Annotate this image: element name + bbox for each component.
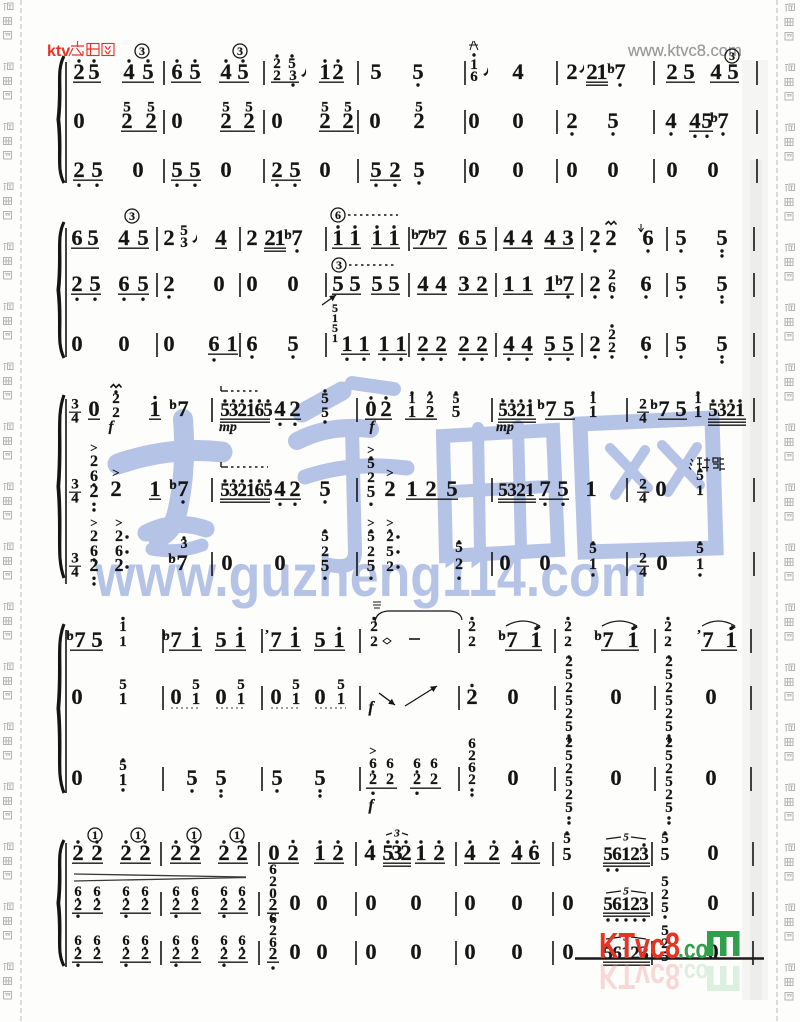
svg-text:1: 1 bbox=[696, 556, 704, 573]
svg-text:0: 0 bbox=[316, 890, 327, 915]
svg-text:2: 2 bbox=[369, 771, 377, 788]
svg-text:0: 0 bbox=[271, 108, 282, 133]
svg-text:7: 7 bbox=[562, 271, 573, 296]
svg-text:2: 2 bbox=[218, 840, 229, 865]
svg-text:2: 2 bbox=[91, 840, 102, 865]
svg-text:0: 0 bbox=[118, 331, 129, 356]
svg-text:0: 0 bbox=[215, 684, 226, 709]
svg-text:0: 0 bbox=[666, 157, 677, 182]
svg-text:5: 5 bbox=[371, 271, 382, 296]
svg-text:7: 7 bbox=[545, 396, 556, 421]
svg-text:1: 1 bbox=[119, 770, 128, 789]
svg-text:0: 0 bbox=[610, 684, 621, 709]
svg-text:0: 0 bbox=[468, 157, 479, 182]
svg-text:1: 1 bbox=[371, 225, 382, 250]
svg-text:2: 2 bbox=[189, 840, 200, 865]
svg-text:1: 1 bbox=[378, 331, 389, 356]
svg-text:6: 6 bbox=[608, 280, 616, 296]
svg-text:0: 0 bbox=[656, 550, 667, 575]
svg-text:1: 1 bbox=[289, 627, 300, 652]
svg-text:2: 2 bbox=[172, 897, 180, 914]
svg-text:0: 0 bbox=[213, 271, 224, 296]
svg-text:5: 5 bbox=[675, 396, 686, 421]
svg-text:5: 5 bbox=[171, 157, 182, 182]
svg-text:0: 0 bbox=[71, 331, 82, 356]
svg-text:2: 2 bbox=[566, 59, 577, 84]
svg-text:3: 3 bbox=[237, 44, 243, 58]
svg-text:4: 4 bbox=[503, 331, 514, 356]
svg-text:0: 0 bbox=[319, 157, 330, 182]
svg-text:0: 0 bbox=[539, 550, 550, 575]
svg-text:5: 5 bbox=[215, 765, 226, 790]
svg-text:6: 6 bbox=[640, 331, 651, 356]
svg-text:5: 5 bbox=[661, 900, 669, 916]
svg-text:3: 3 bbox=[393, 828, 400, 840]
svg-text:1: 1 bbox=[319, 59, 330, 84]
svg-text:0: 0 bbox=[274, 550, 285, 575]
svg-text:7: 7 bbox=[270, 627, 281, 652]
svg-text:0: 0 bbox=[705, 765, 716, 790]
svg-text:2: 2 bbox=[289, 476, 300, 501]
svg-text:mp: mp bbox=[219, 420, 237, 435]
svg-text:4: 4 bbox=[544, 225, 555, 250]
svg-text:2: 2 bbox=[370, 634, 378, 650]
svg-text:5: 5 bbox=[137, 225, 148, 250]
svg-text:1: 1 bbox=[589, 556, 597, 573]
svg-text:3: 3 bbox=[729, 49, 735, 63]
svg-text:’: ’ bbox=[697, 628, 702, 643]
svg-text:2: 2 bbox=[191, 946, 199, 963]
svg-text:3: 3 bbox=[129, 209, 135, 223]
svg-text:1: 1 bbox=[627, 627, 638, 652]
svg-text:2: 2 bbox=[73, 157, 84, 182]
svg-text:0: 0 bbox=[464, 939, 475, 964]
svg-text:1: 1 bbox=[725, 627, 736, 652]
svg-text:2: 2 bbox=[564, 634, 572, 650]
svg-text:2: 2 bbox=[191, 897, 199, 914]
svg-text:2: 2 bbox=[72, 840, 83, 865]
svg-text:7: 7 bbox=[506, 627, 517, 652]
svg-text:7: 7 bbox=[614, 59, 625, 84]
svg-text:2: 2 bbox=[332, 59, 343, 84]
svg-text:5: 5 bbox=[475, 225, 486, 250]
svg-text:1: 1 bbox=[292, 689, 301, 708]
svg-text:0: 0 bbox=[369, 108, 380, 133]
svg-text:2: 2 bbox=[141, 897, 149, 914]
svg-text:7: 7 bbox=[702, 627, 713, 652]
svg-text:1: 1 bbox=[735, 400, 745, 421]
svg-text:4: 4 bbox=[511, 840, 522, 865]
svg-text:5: 5 bbox=[367, 482, 376, 501]
svg-text:5: 5 bbox=[412, 59, 423, 84]
svg-text:5: 5 bbox=[716, 225, 727, 250]
svg-text:2: 2 bbox=[139, 840, 150, 865]
svg-text:6: 6 bbox=[171, 59, 182, 84]
svg-text:2: 2 bbox=[122, 946, 130, 963]
svg-text:2: 2 bbox=[93, 897, 101, 914]
svg-text:2: 2 bbox=[74, 946, 82, 963]
svg-text:1: 1 bbox=[525, 400, 535, 421]
svg-text:2: 2 bbox=[73, 59, 84, 84]
svg-text:5: 5 bbox=[87, 225, 98, 250]
svg-text:0: 0 bbox=[365, 396, 376, 421]
svg-text:2: 2 bbox=[400, 840, 411, 865]
svg-text:7: 7 bbox=[176, 550, 187, 575]
svg-text:5: 5 bbox=[289, 157, 300, 182]
svg-text:5: 5 bbox=[557, 476, 568, 501]
svg-text:5: 5 bbox=[446, 476, 457, 501]
svg-text:1: 1 bbox=[119, 689, 128, 708]
svg-text:2: 2 bbox=[342, 108, 353, 133]
svg-text:0: 0 bbox=[655, 476, 666, 501]
svg-text:1: 1 bbox=[190, 627, 201, 652]
svg-text:4: 4 bbox=[118, 225, 129, 250]
svg-text:2: 2 bbox=[468, 619, 476, 635]
svg-text:0: 0 bbox=[289, 939, 300, 964]
svg-text:5: 5 bbox=[137, 271, 148, 296]
svg-text:5: 5 bbox=[215, 627, 226, 652]
svg-text:1: 1 bbox=[596, 59, 607, 84]
svg-text:1: 1 bbox=[585, 476, 596, 501]
svg-text:2: 2 bbox=[425, 476, 436, 501]
svg-text:7: 7 bbox=[291, 225, 302, 250]
svg-text:0: 0 bbox=[171, 108, 182, 133]
svg-text:4: 4 bbox=[220, 59, 231, 84]
svg-text:2: 2 bbox=[476, 331, 487, 356]
svg-text:5: 5 bbox=[665, 719, 673, 735]
svg-text:1: 1 bbox=[341, 331, 352, 356]
svg-text:6: 6 bbox=[413, 756, 421, 772]
svg-text:1: 1 bbox=[415, 840, 426, 865]
svg-text:mp: mp bbox=[496, 420, 514, 435]
svg-text:1: 1 bbox=[406, 476, 417, 501]
svg-text:0: 0 bbox=[246, 271, 257, 296]
svg-text:5: 5 bbox=[452, 402, 461, 421]
svg-text:1: 1 bbox=[119, 634, 127, 650]
svg-text:5: 5 bbox=[683, 59, 694, 84]
svg-text:2: 2 bbox=[74, 897, 82, 914]
svg-text:0: 0 bbox=[512, 157, 523, 182]
svg-text:7: 7 bbox=[658, 396, 669, 421]
svg-text:0: 0 bbox=[507, 684, 518, 709]
svg-text:5: 5 bbox=[413, 157, 424, 182]
svg-text:2: 2 bbox=[389, 157, 400, 182]
svg-text:2: 2 bbox=[386, 559, 394, 575]
svg-text:5: 5 bbox=[189, 59, 200, 84]
svg-text:2: 2 bbox=[384, 476, 395, 501]
svg-text:2: 2 bbox=[115, 555, 124, 575]
svg-text:0: 0 bbox=[705, 684, 716, 709]
svg-text:2: 2 bbox=[664, 634, 672, 650]
svg-text:2: 2 bbox=[589, 225, 600, 250]
svg-text:5: 5 bbox=[89, 271, 100, 296]
svg-text:2: 2 bbox=[220, 108, 231, 133]
svg-text:5: 5 bbox=[263, 480, 273, 501]
svg-text:0: 0 bbox=[566, 157, 577, 182]
svg-text:0: 0 bbox=[88, 396, 99, 421]
svg-text:0: 0 bbox=[511, 939, 522, 964]
svg-text:0: 0 bbox=[512, 108, 523, 133]
svg-text:4: 4 bbox=[665, 108, 676, 133]
svg-text:5: 5 bbox=[321, 556, 330, 575]
svg-text:2: 2 bbox=[163, 271, 174, 296]
svg-text:2: 2 bbox=[93, 946, 101, 963]
svg-text:2: 2 bbox=[220, 946, 228, 963]
svg-text:5: 5 bbox=[565, 800, 573, 816]
svg-text:7: 7 bbox=[177, 396, 188, 421]
svg-text:0: 0 bbox=[365, 939, 376, 964]
svg-text:4: 4 bbox=[639, 491, 647, 507]
svg-text:6: 6 bbox=[386, 756, 394, 772]
svg-text:4: 4 bbox=[689, 108, 700, 133]
svg-text:5: 5 bbox=[388, 271, 399, 296]
svg-text:5: 5 bbox=[271, 765, 282, 790]
svg-text:2: 2 bbox=[666, 59, 677, 84]
svg-text:4: 4 bbox=[417, 271, 428, 296]
svg-text:2: 2 bbox=[287, 840, 298, 865]
svg-text:0: 0 bbox=[170, 684, 181, 709]
svg-text:6: 6 bbox=[470, 69, 478, 85]
svg-text:2: 2 bbox=[589, 271, 600, 296]
svg-text:6: 6 bbox=[208, 331, 219, 356]
svg-text:5: 5 bbox=[675, 271, 686, 296]
svg-text:3: 3 bbox=[562, 225, 573, 250]
svg-text:5: 5 bbox=[142, 59, 153, 84]
svg-text:2: 2 bbox=[246, 225, 257, 250]
svg-text:6: 6 bbox=[430, 756, 438, 772]
svg-text:4: 4 bbox=[521, 225, 532, 250]
svg-text:2: 2 bbox=[417, 331, 428, 356]
svg-text:0: 0 bbox=[410, 890, 421, 915]
svg-text:5: 5 bbox=[563, 844, 572, 864]
svg-text:7: 7 bbox=[417, 225, 428, 250]
svg-text:2: 2 bbox=[121, 108, 132, 133]
svg-text:1: 1 bbox=[349, 225, 360, 250]
svg-text:4: 4 bbox=[710, 59, 721, 84]
svg-text:2: 2 bbox=[120, 840, 131, 865]
svg-text:2: 2 bbox=[243, 108, 254, 133]
svg-text:0: 0 bbox=[287, 271, 298, 296]
svg-text:0: 0 bbox=[132, 157, 143, 182]
svg-text:0: 0 bbox=[707, 840, 718, 865]
svg-text:6: 6 bbox=[71, 225, 82, 250]
svg-text:3: 3 bbox=[180, 235, 188, 251]
svg-text:4: 4 bbox=[71, 491, 79, 507]
svg-text:4: 4 bbox=[215, 225, 226, 250]
svg-text:7: 7 bbox=[170, 627, 181, 652]
svg-text:1: 1 bbox=[192, 689, 201, 708]
svg-text:5: 5 bbox=[623, 832, 629, 844]
svg-text:1: 1 bbox=[226, 331, 237, 356]
svg-text:2: 2 bbox=[589, 331, 600, 356]
svg-text:2: 2 bbox=[236, 840, 247, 865]
svg-text:1: 1 bbox=[503, 271, 514, 296]
svg-text:1: 1 bbox=[333, 627, 344, 652]
svg-text:5: 5 bbox=[370, 157, 381, 182]
svg-text:6: 6 bbox=[246, 331, 257, 356]
svg-text:5: 5 bbox=[332, 271, 343, 296]
svg-text:2: 2 bbox=[145, 108, 156, 133]
svg-text:2: 2 bbox=[172, 946, 180, 963]
svg-text:4: 4 bbox=[71, 411, 79, 427]
svg-text:.co: .co bbox=[678, 935, 708, 965]
svg-text:1: 1 bbox=[530, 627, 541, 652]
svg-text:>: > bbox=[386, 515, 393, 530]
svg-text:7: 7 bbox=[177, 476, 188, 501]
svg-text:1: 1 bbox=[525, 480, 535, 501]
svg-text:1: 1 bbox=[314, 840, 325, 865]
svg-text:6: 6 bbox=[458, 225, 469, 250]
svg-text:2: 2 bbox=[564, 619, 572, 635]
svg-text:0: 0 bbox=[499, 550, 510, 575]
svg-text:2: 2 bbox=[608, 340, 616, 356]
svg-text:0: 0 bbox=[71, 684, 82, 709]
svg-text:2: 2 bbox=[466, 684, 477, 709]
svg-text:7: 7 bbox=[74, 627, 85, 652]
svg-text:2: 2 bbox=[455, 556, 463, 573]
svg-text:4: 4 bbox=[364, 840, 375, 865]
svg-text:0: 0 bbox=[464, 890, 475, 915]
svg-text:1: 1 bbox=[237, 689, 246, 708]
svg-text:2: 2 bbox=[435, 331, 446, 356]
svg-text:5: 5 bbox=[562, 331, 573, 356]
svg-text:2: 2 bbox=[110, 476, 121, 501]
svg-text:5: 5 bbox=[91, 157, 102, 182]
svg-text:2: 2 bbox=[468, 772, 476, 788]
svg-text:6: 6 bbox=[642, 225, 653, 250]
svg-text:1: 1 bbox=[694, 402, 703, 421]
svg-text:2: 2 bbox=[122, 897, 130, 914]
svg-text:3: 3 bbox=[639, 844, 649, 865]
svg-text:2: 2 bbox=[426, 402, 435, 421]
svg-text:6: 6 bbox=[528, 840, 539, 865]
svg-text:1: 1 bbox=[337, 689, 346, 708]
svg-text:5: 5 bbox=[607, 108, 618, 133]
svg-text:0: 0 bbox=[707, 157, 718, 182]
svg-text:2: 2 bbox=[289, 396, 300, 421]
svg-text:2: 2 bbox=[605, 225, 616, 250]
svg-text:’: ’ bbox=[265, 628, 270, 643]
svg-text:0: 0 bbox=[610, 765, 621, 790]
svg-text:2: 2 bbox=[319, 108, 330, 133]
svg-text:0: 0 bbox=[507, 765, 518, 790]
svg-text:3: 3 bbox=[458, 271, 469, 296]
svg-text:0: 0 bbox=[73, 108, 84, 133]
svg-text:2: 2 bbox=[141, 946, 149, 963]
svg-text:2: 2 bbox=[413, 108, 424, 133]
svg-text:5: 5 bbox=[665, 800, 673, 816]
svg-text:1: 1 bbox=[358, 331, 369, 356]
svg-text:2: 2 bbox=[413, 771, 421, 788]
svg-text:0: 0 bbox=[289, 890, 300, 915]
svg-text:5: 5 bbox=[675, 331, 686, 356]
svg-text:2: 2 bbox=[71, 271, 82, 296]
svg-text:5: 5 bbox=[287, 331, 298, 356]
svg-text:5: 5 bbox=[186, 765, 197, 790]
svg-text:5: 5 bbox=[349, 271, 360, 296]
svg-text:0: 0 bbox=[314, 684, 325, 709]
svg-text:2: 2 bbox=[433, 840, 444, 865]
svg-text:1: 1 bbox=[544, 271, 555, 296]
svg-text:1: 1 bbox=[388, 225, 399, 250]
svg-text:5: 5 bbox=[88, 59, 99, 84]
svg-text:5: 5 bbox=[661, 844, 670, 864]
svg-text:1: 1 bbox=[332, 225, 343, 250]
svg-text:1: 1 bbox=[149, 476, 160, 501]
svg-text:2: 2 bbox=[238, 897, 246, 914]
svg-text:2: 2 bbox=[90, 555, 99, 575]
svg-text:0: 0 bbox=[220, 157, 231, 182]
svg-text:2: 2 bbox=[170, 840, 181, 865]
svg-text:6: 6 bbox=[335, 208, 341, 222]
svg-text:ktv: ktv bbox=[47, 43, 70, 60]
svg-text:2: 2 bbox=[163, 225, 174, 250]
svg-text:2: 2 bbox=[90, 481, 99, 501]
svg-text:4: 4 bbox=[123, 59, 134, 84]
svg-text:2: 2 bbox=[664, 619, 672, 635]
svg-text:2: 2 bbox=[430, 771, 438, 788]
svg-text:7: 7 bbox=[435, 225, 446, 250]
svg-text:5: 5 bbox=[716, 331, 727, 356]
svg-text:5: 5 bbox=[386, 544, 394, 560]
svg-text:5: 5 bbox=[237, 59, 248, 84]
svg-text:0: 0 bbox=[562, 939, 573, 964]
svg-text:2: 2 bbox=[386, 771, 394, 788]
svg-text:2: 2 bbox=[220, 897, 228, 914]
svg-text:0: 0 bbox=[511, 890, 522, 915]
svg-text:6: 6 bbox=[640, 271, 651, 296]
svg-text:6: 6 bbox=[118, 271, 129, 296]
svg-text:5: 5 bbox=[319, 476, 330, 501]
svg-text:0: 0 bbox=[468, 108, 479, 133]
svg-text:1: 1 bbox=[696, 483, 704, 499]
svg-text:2: 2 bbox=[370, 619, 378, 635]
svg-text:4: 4 bbox=[512, 59, 523, 84]
svg-text:1: 1 bbox=[395, 331, 406, 356]
svg-text:2: 2 bbox=[566, 108, 577, 133]
svg-text:0: 0 bbox=[221, 550, 232, 575]
svg-text:5: 5 bbox=[544, 331, 555, 356]
svg-text:2: 2 bbox=[468, 634, 476, 650]
svg-text:5: 5 bbox=[314, 765, 325, 790]
svg-text:4: 4 bbox=[464, 840, 475, 865]
svg-text:5: 5 bbox=[675, 225, 686, 250]
svg-text:0: 0 bbox=[163, 331, 174, 356]
svg-text:4: 4 bbox=[503, 225, 514, 250]
svg-text:5: 5 bbox=[189, 157, 200, 182]
svg-text:0: 0 bbox=[365, 890, 376, 915]
svg-text:4: 4 bbox=[435, 271, 446, 296]
svg-text:5: 5 bbox=[91, 627, 102, 652]
svg-text:0: 0 bbox=[410, 939, 421, 964]
svg-text:4: 4 bbox=[639, 411, 647, 427]
svg-text:5: 5 bbox=[367, 556, 376, 575]
svg-text:5: 5 bbox=[314, 627, 325, 652]
svg-text:2: 2 bbox=[458, 331, 469, 356]
svg-text:4: 4 bbox=[274, 476, 285, 501]
svg-text:0: 0 bbox=[607, 157, 618, 182]
svg-text:1: 1 bbox=[408, 402, 417, 421]
svg-text:1: 1 bbox=[119, 619, 127, 635]
svg-text:2: 2 bbox=[238, 946, 246, 963]
svg-text:4: 4 bbox=[521, 331, 532, 356]
svg-text:0: 0 bbox=[562, 890, 573, 915]
svg-text:2: 2 bbox=[271, 157, 282, 182]
svg-text:1: 1 bbox=[234, 627, 245, 652]
svg-text:4: 4 bbox=[639, 565, 647, 581]
svg-text:7: 7 bbox=[539, 476, 550, 501]
svg-text:5: 5 bbox=[716, 271, 727, 296]
